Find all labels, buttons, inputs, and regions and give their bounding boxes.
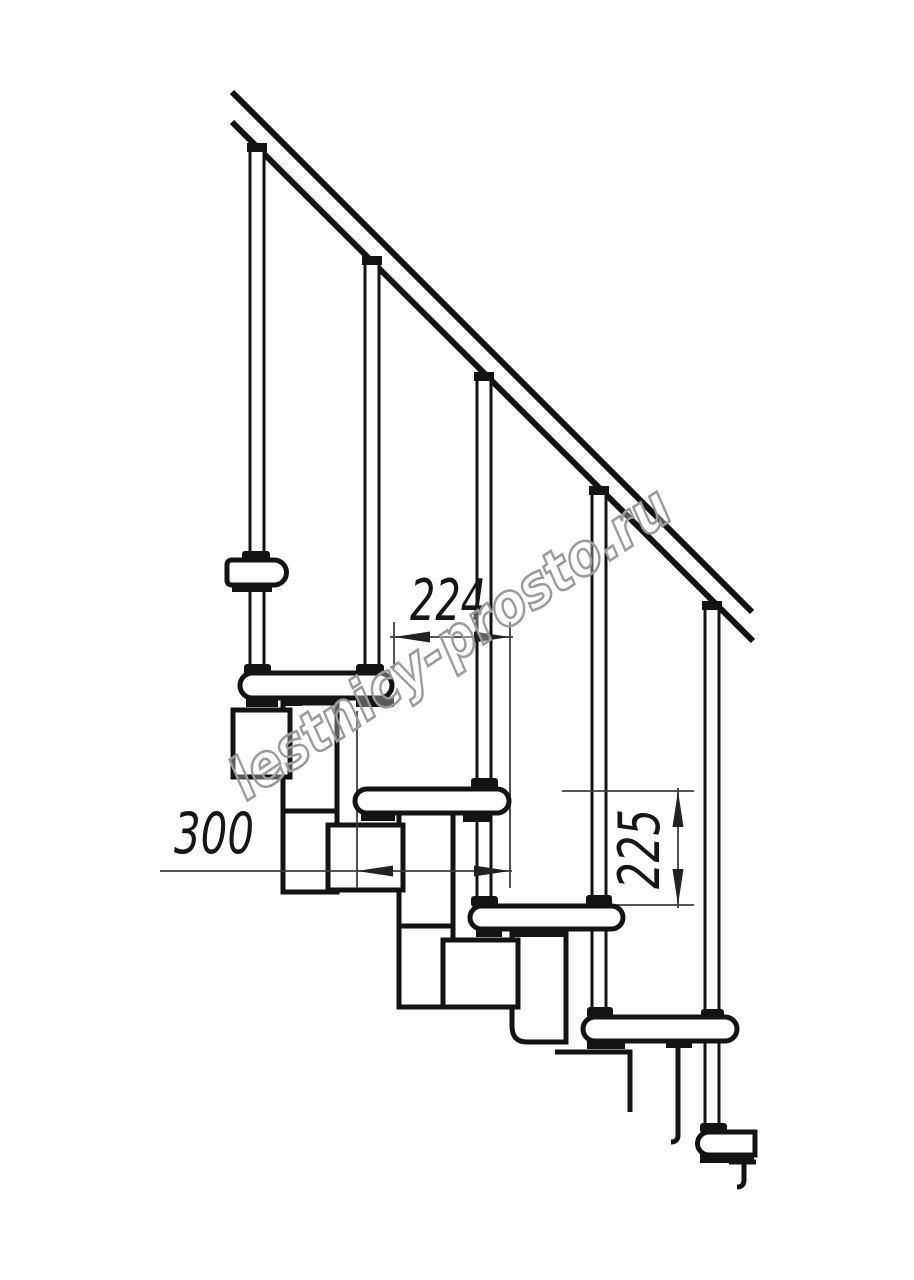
dimension-label-225: 225 (607, 809, 673, 889)
clip-tread5 (700, 1153, 754, 1163)
cap-baluster1-tread1 (244, 664, 271, 675)
staircase-technical-drawing: 224 300 225 lestnicy-prosto.ru (0, 0, 914, 1280)
clip-tread3-left (476, 928, 502, 937)
baluster-2 (365, 262, 379, 676)
rail-cap-3 (474, 372, 494, 381)
clip-tread3-right (510, 928, 565, 937)
step-modules (233, 703, 756, 1187)
drawing-svg: 224 300 225 lestnicy-prosto.ru (0, 0, 914, 1280)
tread-3 (470, 906, 623, 929)
sleeve-baluster3-tread2 (471, 778, 498, 790)
clip-tread0 (232, 584, 272, 592)
clip-tread2-left (361, 811, 395, 821)
module-under-tread4-corner (555, 1052, 630, 1112)
module-box-1 (328, 825, 403, 890)
baluster-5 (705, 607, 719, 1134)
sleeve-baluster1-tread0 (242, 551, 270, 562)
clip-tread4-right (666, 1040, 692, 1048)
clip-tread1-left (246, 697, 278, 707)
sleeve-baluster5-tread5 (700, 1123, 727, 1133)
cap-baluster4-tread4 (587, 1007, 613, 1018)
baluster-1 (250, 150, 264, 676)
tread-5 (698, 1132, 756, 1155)
tread-2 (355, 789, 509, 813)
sleeve-baluster5-tread4 (701, 1009, 724, 1018)
arrowhead-down (673, 869, 684, 905)
watermark-text: lestnicy-prosto.ru (216, 472, 683, 813)
module-under-tread5-edge (737, 1162, 744, 1187)
rail-cap-4 (589, 486, 609, 495)
sleeve-baluster4-tread3 (586, 895, 612, 907)
cap-baluster3-tread3 (471, 896, 498, 907)
clip-tread2-right (463, 812, 491, 822)
module-box-2 (443, 940, 518, 1007)
page: { "canvas": { "width": 914, "height": 12… (0, 0, 914, 1280)
rail-cap-2 (362, 256, 382, 265)
tread-0 (227, 560, 287, 585)
clip-tread4-left (587, 1040, 625, 1049)
dimension-label-300: 300 (174, 801, 254, 867)
arrowhead-up (673, 791, 684, 827)
rail-cap-1 (247, 143, 267, 152)
module-under-tread4-edge (671, 1043, 678, 1142)
rail-cap-5 (702, 601, 722, 610)
tread-4 (583, 1017, 737, 1041)
watermark: lestnicy-prosto.ru (216, 472, 683, 813)
